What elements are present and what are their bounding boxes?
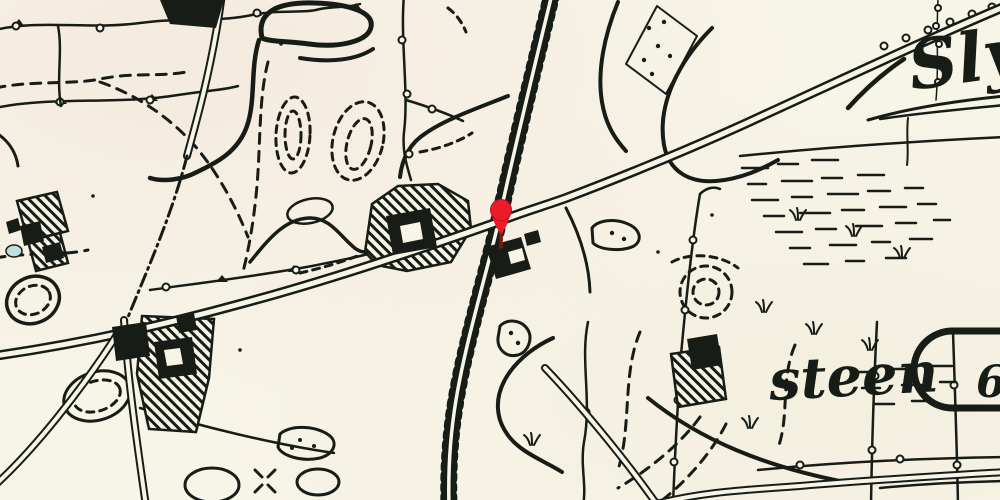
country-road-southeast: [545, 368, 658, 500]
map-image: Sly steen 6: [0, 0, 1000, 500]
map-canvas[interactable]: Sly steen 6: [0, 0, 1000, 500]
pin-head: [491, 200, 512, 221]
buildings: [6, 0, 722, 379]
place-label-top-right: Sly: [903, 11, 1000, 107]
cartouche-number: 6: [976, 357, 1000, 408]
cross-dashes: [255, 470, 275, 492]
field-parcel: [626, 6, 697, 94]
